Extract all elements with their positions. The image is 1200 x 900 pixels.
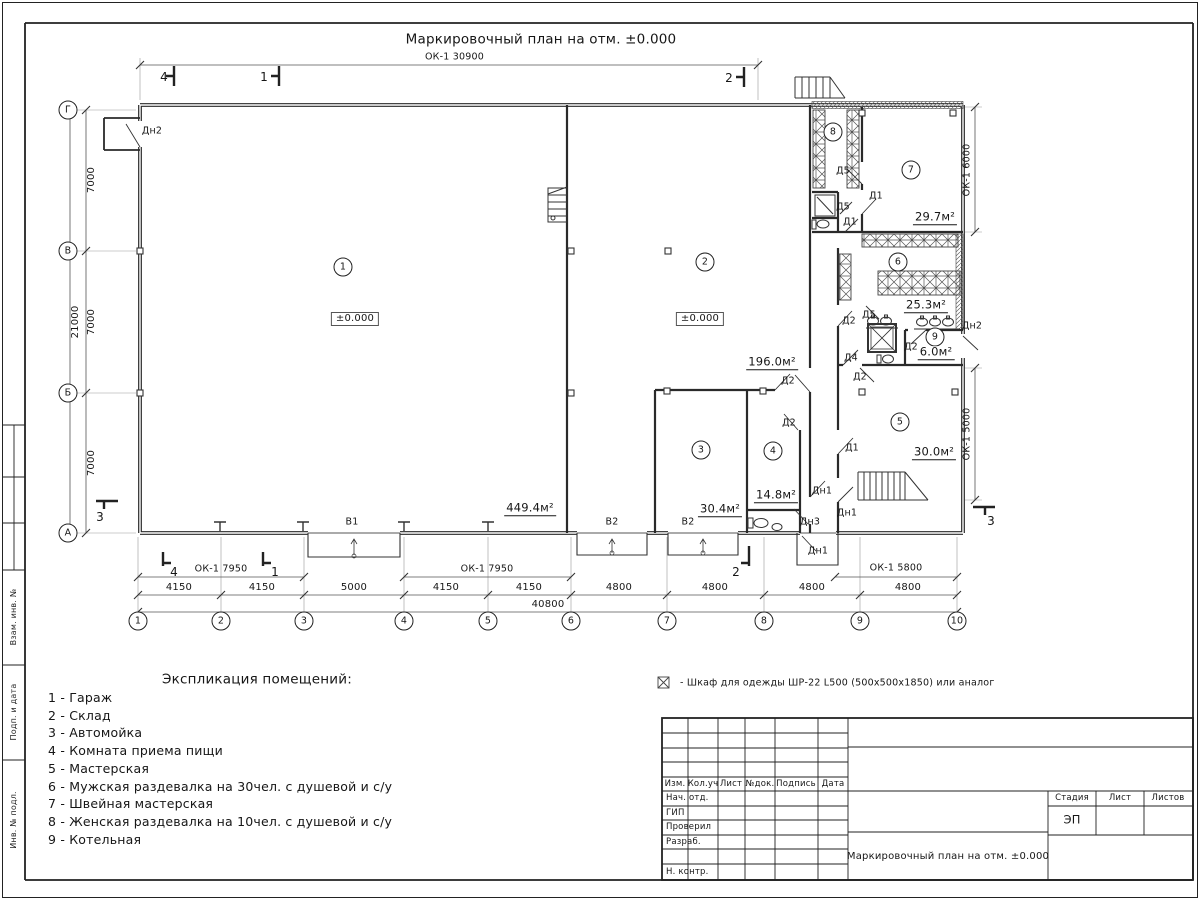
tb-sheets-header: Листов xyxy=(1152,794,1185,803)
door-label-d5-3: Д5 xyxy=(862,310,876,320)
drawing-title: Маркировочный план на отм. ±0.000 xyxy=(406,33,677,47)
area-room9: 6.0м² xyxy=(918,346,955,360)
gates xyxy=(308,533,838,565)
legend-item-9: 9 - Котельная xyxy=(48,834,141,847)
axis-bottom-1: 1 xyxy=(129,612,148,631)
tb-sign-nachotd: Нач. отд. xyxy=(666,794,709,803)
tb-stage-value: ЭП xyxy=(1063,814,1080,826)
tb-sign-proveril: Проверил xyxy=(666,823,711,832)
area-room6: 25.3м² xyxy=(904,299,948,313)
legend-item-4: 4 - Комната приема пищи xyxy=(48,745,223,758)
tb-rev-izm: Изм. xyxy=(665,780,686,789)
area-room2: 196.0м² xyxy=(746,356,798,370)
door-label-dn1-2: Дн1 xyxy=(837,508,857,518)
door-label-d4: Д4 xyxy=(844,353,858,363)
window-dim-bottom-right: ОК-1 5800 xyxy=(870,563,923,573)
wardrobe-note: - Шкаф для одежды ШР-22 L500 (500х500х18… xyxy=(680,678,995,688)
legend-item-5: 5 - Мастерская xyxy=(48,763,149,776)
room-circle-3: 3 xyxy=(692,441,711,460)
area-room1: 449.4м² xyxy=(504,502,556,516)
section-mark-2-top: 2 xyxy=(725,72,733,84)
frame-side-vzam: Взам. инв. № xyxy=(10,589,18,646)
door-label-d2-2: Д2 xyxy=(904,342,918,352)
axis-left-g: Г xyxy=(59,101,78,120)
door-label-d2-5: Д2 xyxy=(782,418,796,428)
door-label-d5-1: Д5 xyxy=(836,166,850,176)
axis-bottom-4: 4 xyxy=(395,612,414,631)
tb-stage-header: Стадия xyxy=(1055,794,1089,803)
room-circle-6: 6 xyxy=(889,253,908,272)
dim-left-0: 7000 xyxy=(87,167,97,193)
legend-item-6: 6 - Мужская раздевалка на 30чел. с душев… xyxy=(48,781,392,794)
door-label-d2-4: Д2 xyxy=(781,376,795,386)
gate-label-v2-2: В2 xyxy=(682,517,695,527)
legend-item-3: 3 - Автомойка xyxy=(48,727,142,740)
room-circle-8: 8 xyxy=(824,123,843,142)
frame xyxy=(3,3,1198,898)
axis-bottom-6: 6 xyxy=(562,612,581,631)
dim-segment-1: 4150 xyxy=(249,583,275,593)
dim-left-2: 7000 xyxy=(87,450,97,476)
tb-sheet-header: Лист xyxy=(1109,794,1131,803)
plan-linework xyxy=(0,0,1200,900)
area-room7: 29.7м² xyxy=(913,211,957,225)
tb-rev-list: Лист xyxy=(720,780,742,789)
axis-bottom-5: 5 xyxy=(479,612,498,631)
area-room3: 30.4м² xyxy=(698,503,742,517)
axis-bottom-10: 10 xyxy=(948,612,967,631)
section-mark-2-bottom: 2 xyxy=(732,566,740,578)
window-dim-right-upper: ОК-1 6000 xyxy=(962,144,972,197)
door-label-d1-2: Д1 xyxy=(843,217,857,227)
door-label-d1-3: Д1 xyxy=(845,443,859,453)
legend-item-2: 2 - Склад xyxy=(48,710,111,723)
door-label-dn1-3: Дн1 xyxy=(808,546,828,556)
tb-sign-gip: ГИП xyxy=(666,809,685,818)
frame-side-inv: Инв. № подл. xyxy=(10,791,18,849)
axis-bottom-7: 7 xyxy=(658,612,677,631)
room-circle-4: 4 xyxy=(764,442,783,461)
door-label-d2-3: Д2 xyxy=(853,372,867,382)
dim-total: 40800 xyxy=(532,600,565,610)
wall-posts xyxy=(137,110,958,531)
door-label-d2-1: Д2 xyxy=(842,316,856,326)
axis-left-b: Б xyxy=(59,384,78,403)
window-dim-bottom-left: ОК-1 7950 xyxy=(195,564,248,574)
room-circle-5: 5 xyxy=(891,413,910,432)
axis-bottom-3: 3 xyxy=(295,612,314,631)
section-flags xyxy=(96,66,995,566)
window-dim-top: ОК-1 30900 xyxy=(425,52,484,62)
tb-rev-ndok: №док. xyxy=(746,780,775,789)
drawing-sheet: Маркировочный план на отм. ±0.000 ОК-1 3… xyxy=(0,0,1200,900)
dim-segment-6: 4800 xyxy=(702,583,728,593)
dim-segment-5: 4800 xyxy=(606,583,632,593)
door-label-dn2-right: Дн2 xyxy=(962,321,982,331)
door-label-dn1-1: Дн1 xyxy=(812,486,832,496)
dim-segment-0: 4150 xyxy=(166,583,192,593)
tb-doc-title: Маркировочный план на отм. ±0.000 xyxy=(847,852,1049,862)
section-mark-3-left: 3 xyxy=(96,511,104,523)
section-mark-4-top: 4 xyxy=(160,71,168,83)
dim-segment-4: 4150 xyxy=(516,583,542,593)
tb-rev-podpis: Подпись xyxy=(776,780,816,789)
dim-segment-3: 4150 xyxy=(433,583,459,593)
section-mark-1-bottom: 1 xyxy=(271,566,279,578)
axis-bottom-9: 9 xyxy=(851,612,870,631)
door-label-dn3: Дн3 xyxy=(800,517,820,527)
tb-sign-razrab: Разраб. xyxy=(666,838,701,847)
tb-rev-data: Дата xyxy=(822,780,845,789)
axis-left-v: В xyxy=(59,242,78,261)
gate-label-v2-1: В2 xyxy=(606,517,619,527)
axis-left-a: А xyxy=(59,524,78,543)
room-circle-7: 7 xyxy=(902,161,921,180)
axis-bottom-2: 2 xyxy=(212,612,231,631)
dim-segment-2: 5000 xyxy=(341,583,367,593)
window-dim-bottom-mid: ОК-1 7950 xyxy=(461,564,514,574)
area-room5: 30.0м² xyxy=(912,446,956,460)
section-mark-1-top: 1 xyxy=(260,71,268,83)
door-label-d5-2: Д5 xyxy=(836,202,850,212)
tb-rev-koluch: Кол.уч xyxy=(688,780,719,789)
section-mark-3-right: 3 xyxy=(987,515,995,527)
elevation-mark-room1: ±0.000 xyxy=(331,312,379,326)
room-circle-2: 2 xyxy=(696,253,715,272)
room-circle-1: 1 xyxy=(334,258,353,277)
dim-segment-8: 4800 xyxy=(895,583,921,593)
frame-side-podp: Подп. и дата xyxy=(10,684,18,741)
tb-sign-nkontr: Н. контр. xyxy=(666,868,709,877)
area-room4: 14.8м² xyxy=(754,489,798,503)
legend-item-8: 8 - Женская раздевалка на 10чел. с душев… xyxy=(48,816,392,829)
door-label-dn2-topleft: Дн2 xyxy=(142,126,162,136)
window-dim-right-lower: ОК-1 5000 xyxy=(962,408,972,461)
section-mark-4-bottom: 4 xyxy=(170,566,178,578)
stairs xyxy=(548,77,928,500)
door-label-d1-1: Д1 xyxy=(869,191,883,201)
legend-item-7: 7 - Швейная мастерская xyxy=(48,798,213,811)
axis-bottom-8: 8 xyxy=(755,612,774,631)
dim-left-1: 7000 xyxy=(87,309,97,335)
dim-segment-7: 4800 xyxy=(799,583,825,593)
dim-left-total: 21000 xyxy=(71,306,81,339)
elevation-mark-room2: ±0.000 xyxy=(676,312,724,326)
gate-label-v1: В1 xyxy=(346,517,359,527)
legend-title: Экспликация помещений: xyxy=(162,673,352,687)
legend-item-1: 1 - Гараж xyxy=(48,692,112,705)
